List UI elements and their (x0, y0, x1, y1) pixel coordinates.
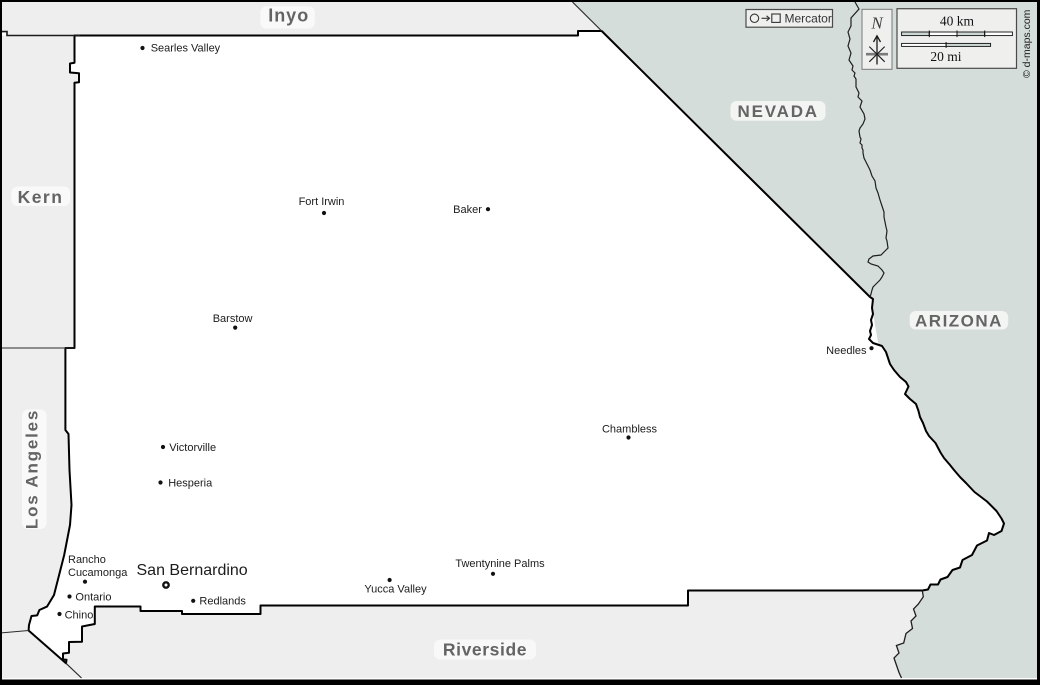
svg-text:Kern: Kern (18, 187, 64, 207)
svg-text:Mercator: Mercator (785, 12, 832, 26)
svg-text:Twentynine Palms: Twentynine Palms (455, 558, 545, 570)
svg-text:Searles Valley: Searles Valley (151, 42, 221, 54)
svg-text:ARIZONA: ARIZONA (915, 312, 1003, 331)
svg-text:Yucca Valley: Yucca Valley (364, 583, 427, 595)
svg-text:Ontario: Ontario (75, 592, 111, 604)
svg-text:Cucamonga: Cucamonga (68, 567, 128, 579)
svg-text:Chambless: Chambless (602, 424, 658, 436)
svg-text:20 mi: 20 mi (930, 49, 961, 64)
svg-text:Riverside: Riverside (443, 640, 527, 660)
svg-text:Hesperia: Hesperia (168, 478, 213, 490)
svg-text:Needles: Needles (826, 345, 867, 357)
svg-text:© d-maps.com: © d-maps.com (1021, 9, 1033, 78)
svg-text:Fort Irwin: Fort Irwin (299, 196, 345, 208)
svg-text:Los Angeles: Los Angeles (22, 409, 41, 529)
svg-text:Inyo: Inyo (268, 6, 309, 26)
svg-text:N: N (870, 14, 884, 33)
svg-text:Rancho: Rancho (68, 554, 106, 566)
svg-text:NEVADA: NEVADA (738, 102, 819, 121)
svg-text:Baker: Baker (453, 204, 482, 216)
svg-text:San Bernardino: San Bernardino (137, 562, 248, 579)
svg-text:Chino: Chino (65, 609, 94, 621)
svg-text:Barstow: Barstow (213, 313, 253, 325)
svg-text:Victorville: Victorville (169, 442, 216, 454)
svg-text:Redlands: Redlands (199, 596, 246, 608)
svg-text:40 km: 40 km (940, 14, 975, 29)
